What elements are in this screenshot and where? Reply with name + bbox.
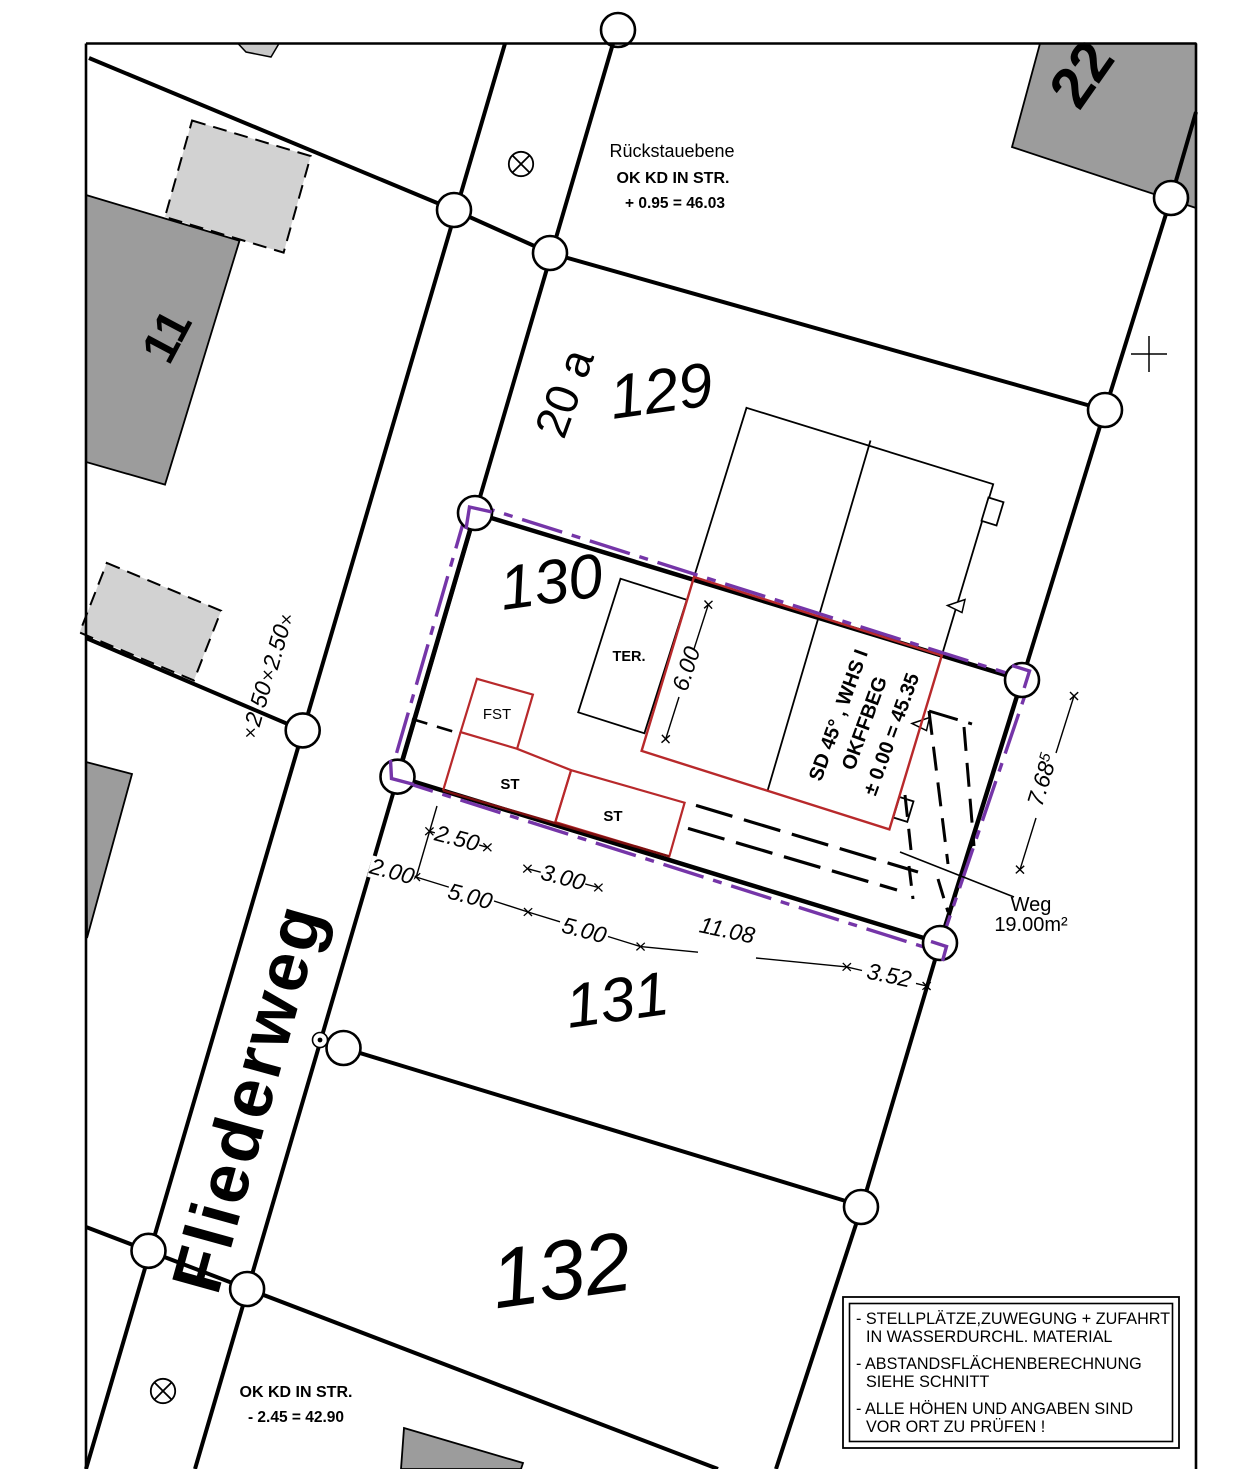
svg-text:SIEHE SCHNITT: SIEHE SCHNITT: [866, 1373, 989, 1391]
svg-text:132: 132: [485, 1214, 637, 1327]
svg-text:- 2.45 = 42.90: - 2.45 = 42.90: [248, 1409, 344, 1426]
svg-text:IN WASSERDURCHL. MATERIAL: IN WASSERDURCHL. MATERIAL: [866, 1328, 1112, 1346]
svg-text:129: 129: [605, 350, 717, 433]
svg-text:131: 131: [561, 959, 673, 1042]
svg-text:Weg: Weg: [1011, 894, 1052, 916]
svg-text:- ALLE HÖHEN UND ANGABEN SIND: - ALLE HÖHEN UND ANGABEN SIND: [856, 1400, 1133, 1418]
svg-text:OK KD IN STR.: OK KD IN STR.: [240, 1384, 353, 1401]
svg-text:VOR ORT ZU PRÜFEN !: VOR ORT ZU PRÜFEN !: [866, 1418, 1045, 1436]
svg-text:Rückstauebene: Rückstauebene: [609, 141, 734, 161]
svg-text:FST: FST: [483, 706, 511, 723]
svg-text:- STELLPLÄTZE,ZUWEGUNG + ZUFAH: - STELLPLÄTZE,ZUWEGUNG + ZUFAHRT: [856, 1310, 1170, 1328]
svg-text:TER.: TER.: [612, 649, 645, 665]
svg-text:19.00m²: 19.00m²: [994, 914, 1068, 936]
svg-text:- ABSTANDSFLÄCHENBERECHNUNG: - ABSTANDSFLÄCHENBERECHNUNG: [856, 1355, 1142, 1373]
svg-text:ST: ST: [603, 808, 622, 825]
svg-text:ST: ST: [500, 776, 519, 793]
svg-text:OK KD IN STR.: OK KD IN STR.: [617, 170, 730, 187]
svg-text:+ 0.95 = 46.03: + 0.95 = 46.03: [625, 195, 725, 212]
svg-text:130: 130: [495, 541, 607, 624]
